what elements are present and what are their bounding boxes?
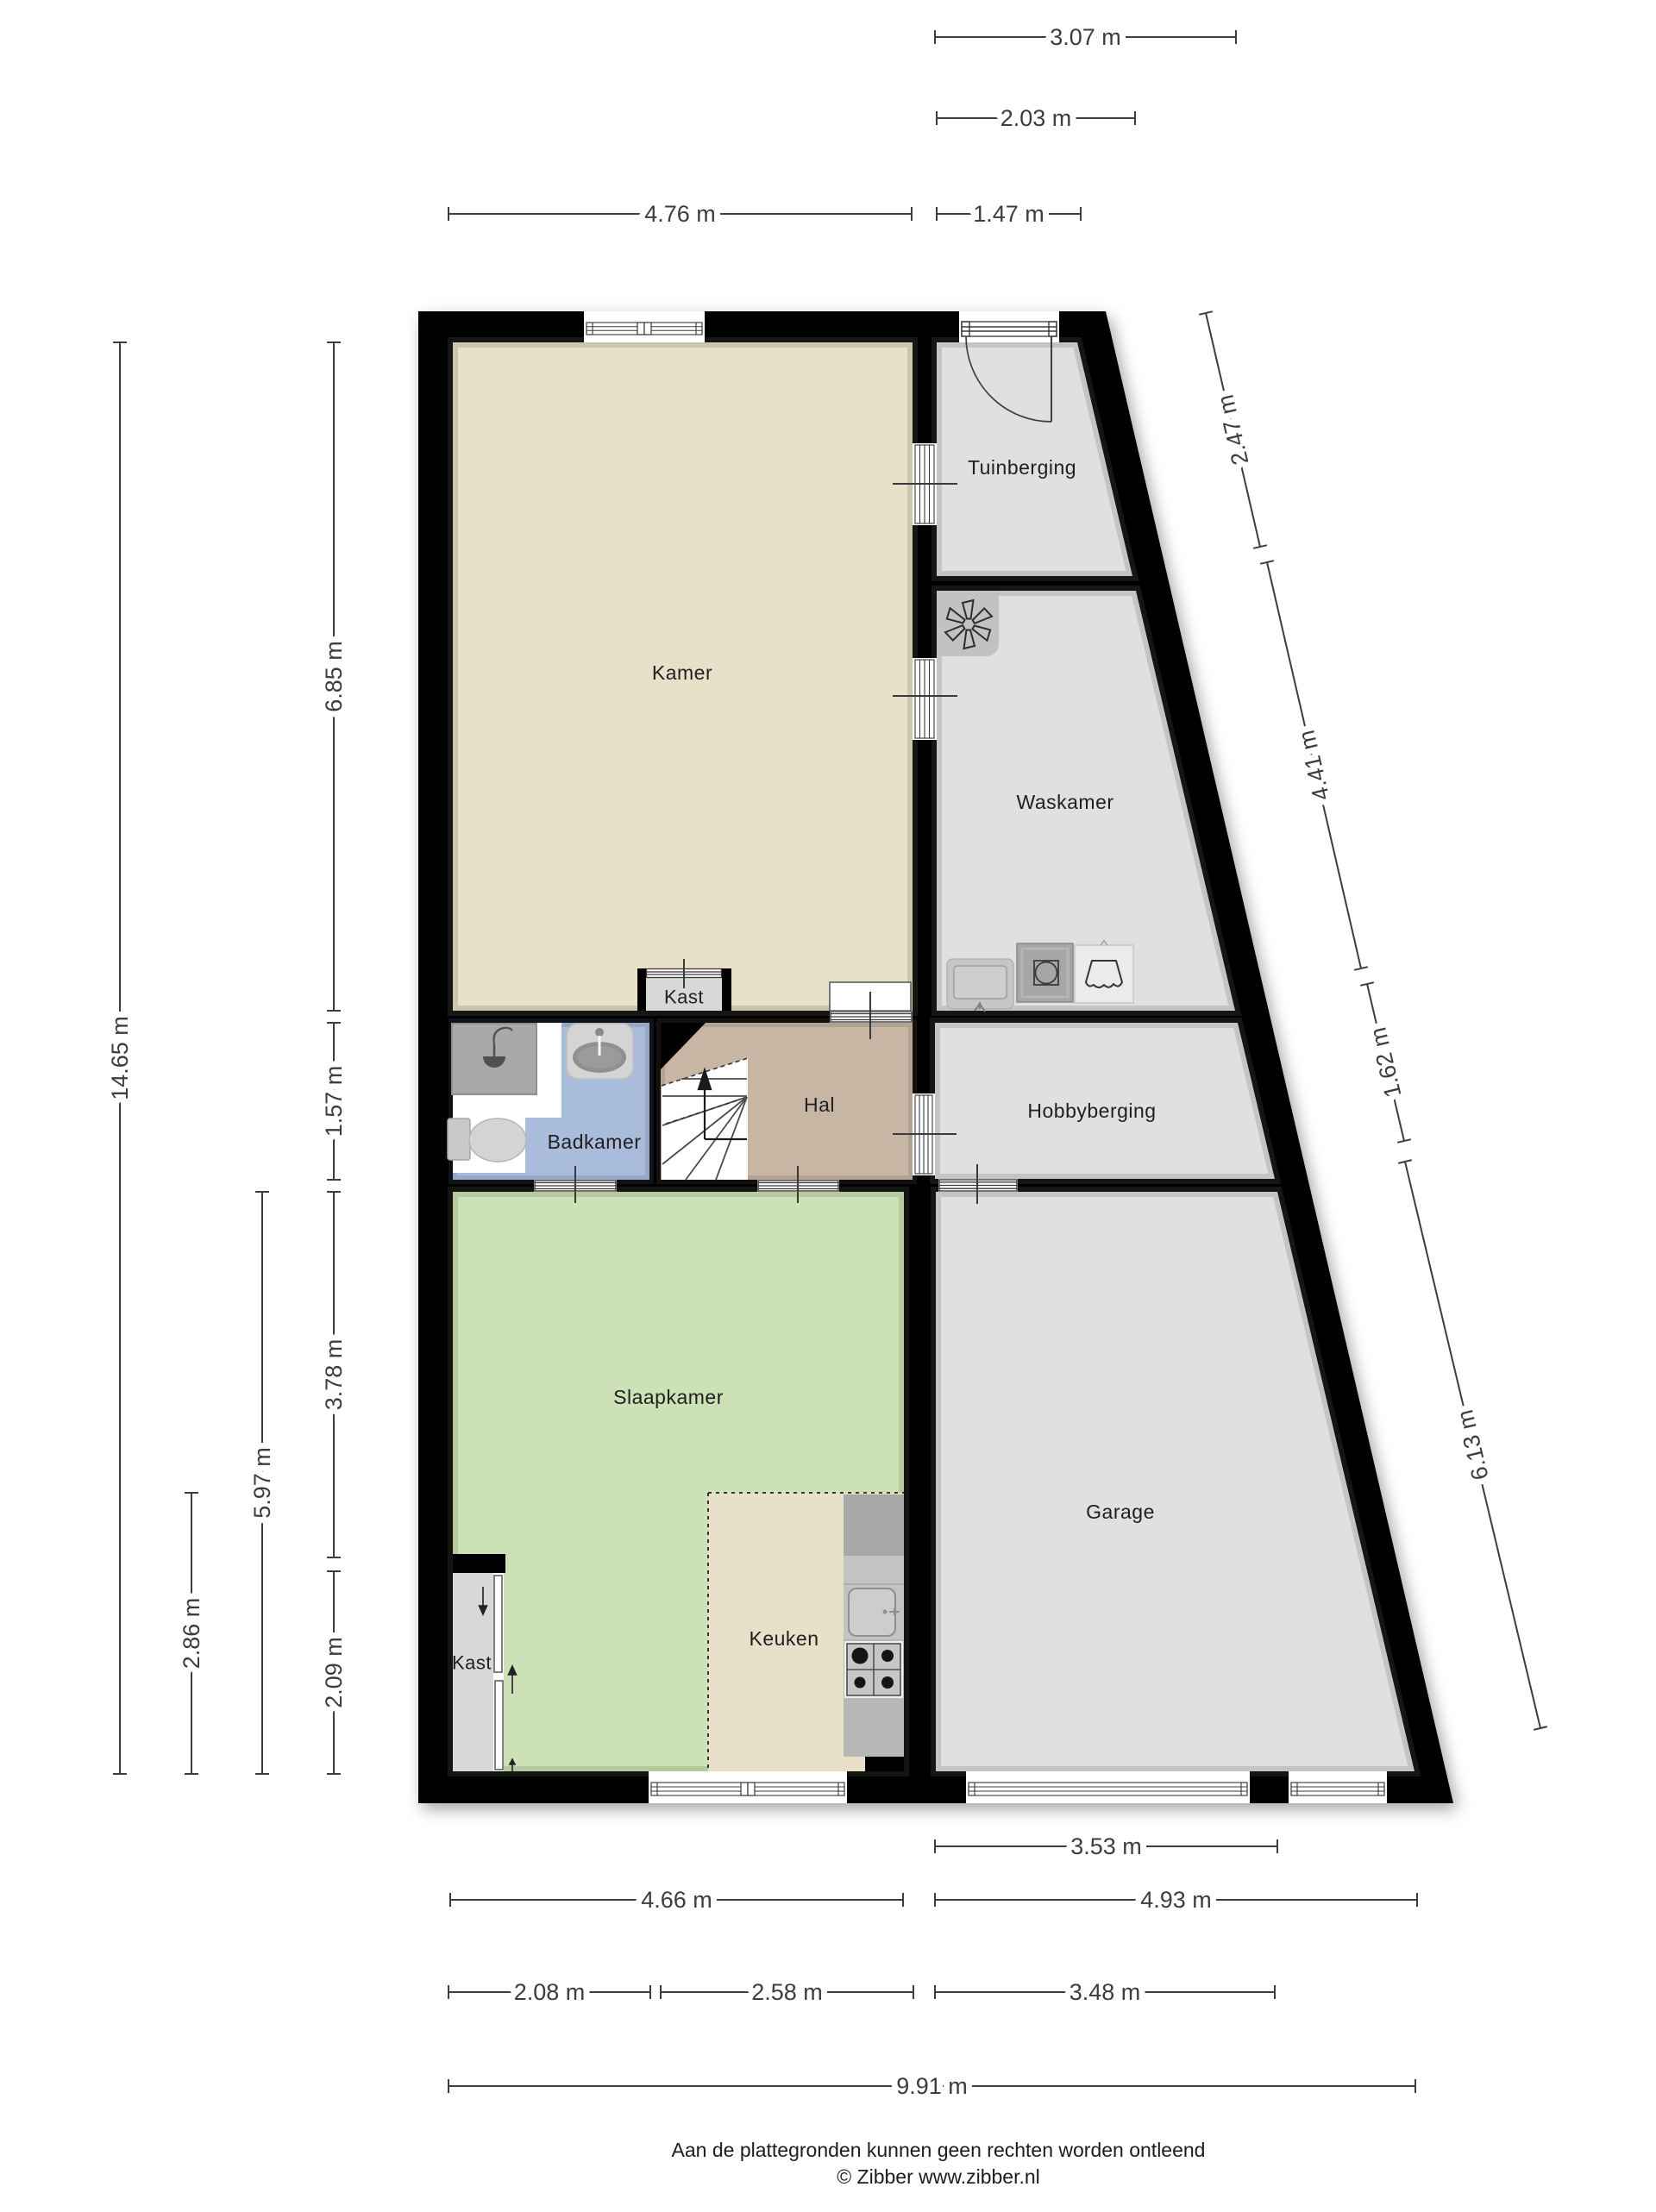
svg-text:4.93 m: 4.93 m xyxy=(1140,1887,1212,1913)
svg-text:Kast: Kast xyxy=(452,1652,492,1674)
svg-text:Kast: Kast xyxy=(664,987,704,1008)
svg-text:4.76 m: 4.76 m xyxy=(644,201,716,227)
svg-text:4.66 m: 4.66 m xyxy=(641,1887,712,1913)
svg-text:Garage: Garage xyxy=(1086,1501,1155,1523)
svg-text:3.07 m: 3.07 m xyxy=(1050,24,1121,50)
svg-text:Aan de plattegronden kunnen ge: Aan de plattegronden kunnen geen rechten… xyxy=(672,2139,1206,2161)
svg-text:9.91 m: 9.91 m xyxy=(896,2073,968,2099)
svg-text:2.08 m: 2.08 m xyxy=(514,1979,586,2005)
svg-text:1.57 m: 1.57 m xyxy=(321,1066,347,1137)
svg-text:3.78 m: 3.78 m xyxy=(321,1339,347,1411)
svg-text:Keuken: Keuken xyxy=(749,1627,819,1650)
svg-text:2.58 m: 2.58 m xyxy=(751,1979,823,2005)
svg-text:Tuinberging: Tuinberging xyxy=(968,456,1076,479)
svg-text:1.47 m: 1.47 m xyxy=(973,201,1044,227)
svg-text:3.53 m: 3.53 m xyxy=(1070,1833,1142,1859)
svg-text:Kamer: Kamer xyxy=(652,661,712,684)
svg-text:5.97 m: 5.97 m xyxy=(249,1447,275,1519)
svg-text:Hal: Hal xyxy=(804,1093,835,1116)
svg-text:2.09 m: 2.09 m xyxy=(321,1637,347,1708)
svg-text:2.03 m: 2.03 m xyxy=(1000,105,1072,131)
svg-text:6.85 m: 6.85 m xyxy=(321,641,347,712)
svg-text:Slaapkamer: Slaapkamer xyxy=(613,1386,724,1408)
svg-text:Waskamer: Waskamer xyxy=(1016,791,1113,813)
svg-text:14.65 m: 14.65 m xyxy=(107,1016,133,1100)
svg-text:© Zibber www.zibber.nl: © Zibber www.zibber.nl xyxy=(837,2165,1040,2188)
svg-text:Hobbyberging: Hobbyberging xyxy=(1027,1100,1156,1122)
svg-text:Badkamer: Badkamer xyxy=(548,1131,642,1153)
svg-text:3.48 m: 3.48 m xyxy=(1069,1979,1141,2005)
svg-text:2.86 m: 2.86 m xyxy=(179,1598,204,1670)
